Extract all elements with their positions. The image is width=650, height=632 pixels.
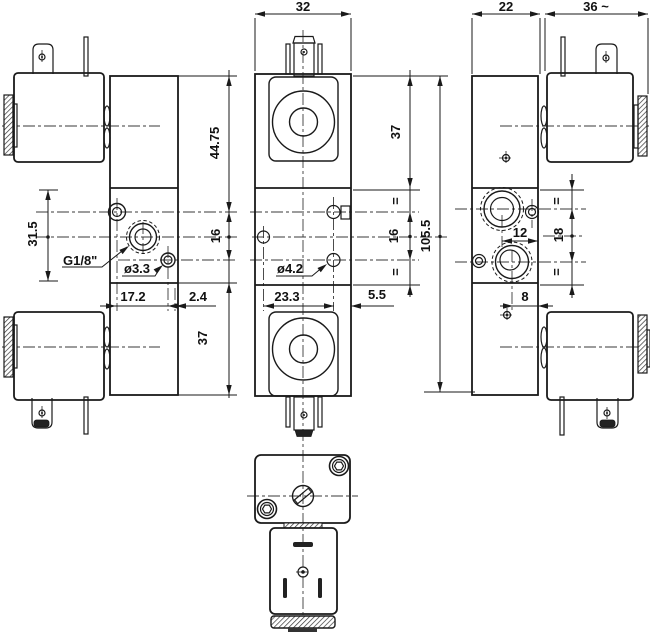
dimension-labels: 32 22 36 ~ 17.2 2.4 23.3 5.5 12 8 G1/8" … [25, 0, 609, 345]
din-connector-tab [294, 397, 314, 430]
dim-port-offset-upper: 12 [513, 225, 527, 240]
lower-solenoid-front [269, 312, 338, 437]
dim-port-spacing-front: 16 [386, 229, 401, 243]
bottom-view [255, 455, 350, 632]
connector-slot [293, 542, 313, 547]
equal-mark: = [549, 268, 564, 276]
dim-port-offset-lower: 8 [521, 289, 528, 304]
knurled-nut [638, 315, 647, 373]
label-pilot-hole: ø3.3 [124, 261, 150, 276]
upper-left-solenoid [4, 37, 110, 162]
dim-solenoid-height: 37 [388, 125, 403, 139]
front-view-holes [258, 206, 351, 267]
dim-solenoid-width: 36 ~ [583, 0, 609, 14]
connector-pin [561, 37, 565, 76]
label-port-thread: G1/8" [63, 253, 97, 268]
dim-edge-offset: 2.4 [189, 289, 208, 304]
dim-height-top: 44.75 [207, 127, 222, 160]
dim-overall-height: 105.5 [418, 220, 433, 253]
hex-socket-screw-top-right [330, 457, 349, 476]
dim-port-offset: 17.2 [120, 289, 145, 304]
pin-slot-right [318, 578, 322, 598]
drawing-sheet: 32 22 36 ~ 17.2 2.4 23.3 5.5 12 8 G1/8" … [0, 0, 650, 632]
dim-section-height: 31.5 [25, 221, 40, 246]
dim-port-spacing-right: 18 [551, 228, 566, 242]
dim-edge-offset-front: 5.5 [368, 287, 386, 302]
dim-front-width: 32 [296, 0, 310, 14]
din-connector-tab [596, 44, 617, 74]
equal-mark: = [388, 268, 403, 276]
connector-pin [84, 397, 88, 434]
upper-solenoid-front [269, 37, 338, 162]
knurled-nut [4, 95, 13, 155]
equal-mark: = [388, 197, 403, 205]
din-connector-tab [294, 43, 314, 76]
dim-height-bottom: 37 [195, 331, 210, 345]
knurled-nut [4, 317, 13, 377]
dim-port-spacing-left: 16 [208, 229, 223, 243]
connector-pin [560, 397, 564, 435]
nut-tab [288, 628, 317, 632]
pin-slot-left [283, 578, 287, 598]
equal-mark: = [549, 197, 564, 205]
solenoid-connector-face [270, 528, 337, 614]
valve-dimension-drawing: 32 22 36 ~ 17.2 2.4 23.3 5.5 12 8 G1/8" … [0, 0, 650, 632]
knurled-nut-bottom [271, 616, 335, 628]
hex-socket-screw-bottom-left [258, 500, 277, 519]
upper-right-solenoid [541, 37, 647, 162]
knurled-nut [638, 96, 647, 156]
centerlines [2, 30, 649, 632]
connector-pin [84, 37, 88, 76]
lower-right-solenoid [541, 312, 650, 435]
dim-hole-spacing: 23.3 [274, 289, 299, 304]
label-mount-hole: ø4.2 [277, 261, 303, 276]
dim-body-width: 22 [499, 0, 513, 14]
din-connector-tab [33, 44, 53, 74]
lower-left-solenoid [4, 312, 110, 434]
left-view-ports [109, 204, 176, 268]
